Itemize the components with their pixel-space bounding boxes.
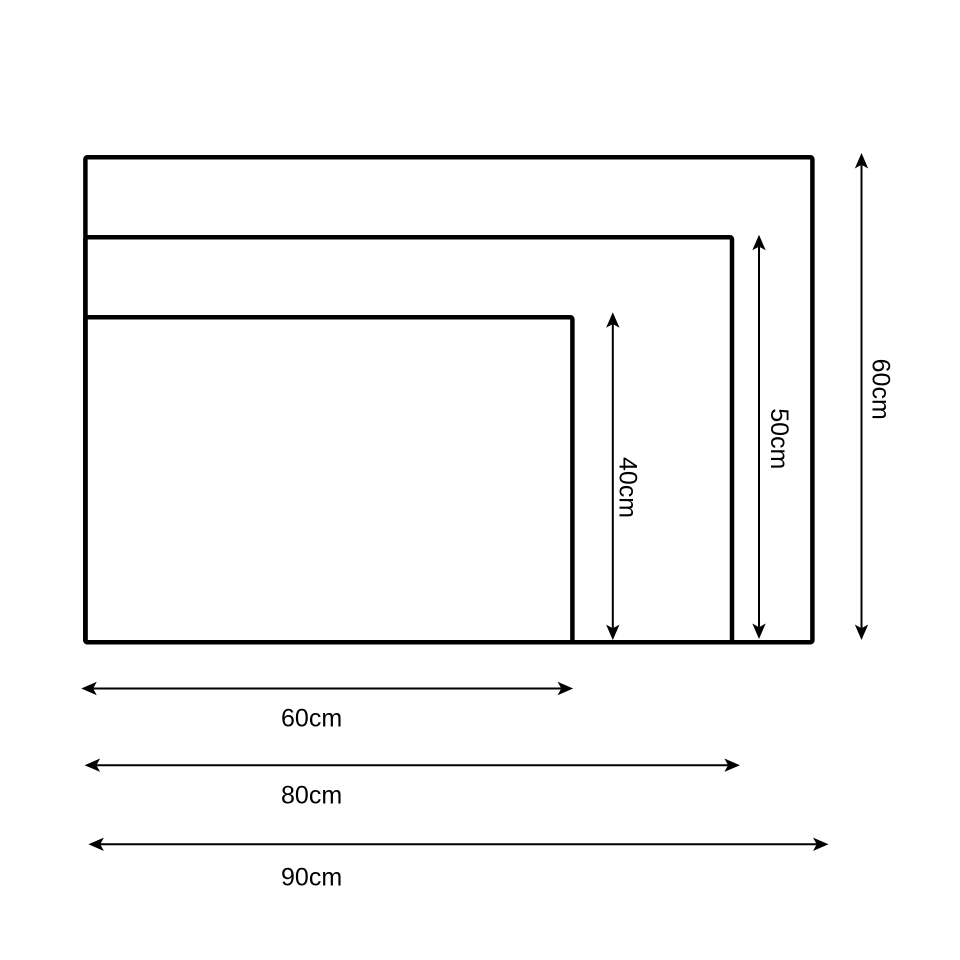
svg-text:40cm: 40cm	[614, 457, 642, 518]
svg-text:60cm: 60cm	[281, 705, 342, 733]
svg-text:80cm: 80cm	[281, 781, 342, 809]
svg-text:60cm: 60cm	[866, 359, 894, 420]
svg-text:50cm: 50cm	[765, 408, 793, 469]
svg-text:90cm: 90cm	[281, 864, 342, 892]
